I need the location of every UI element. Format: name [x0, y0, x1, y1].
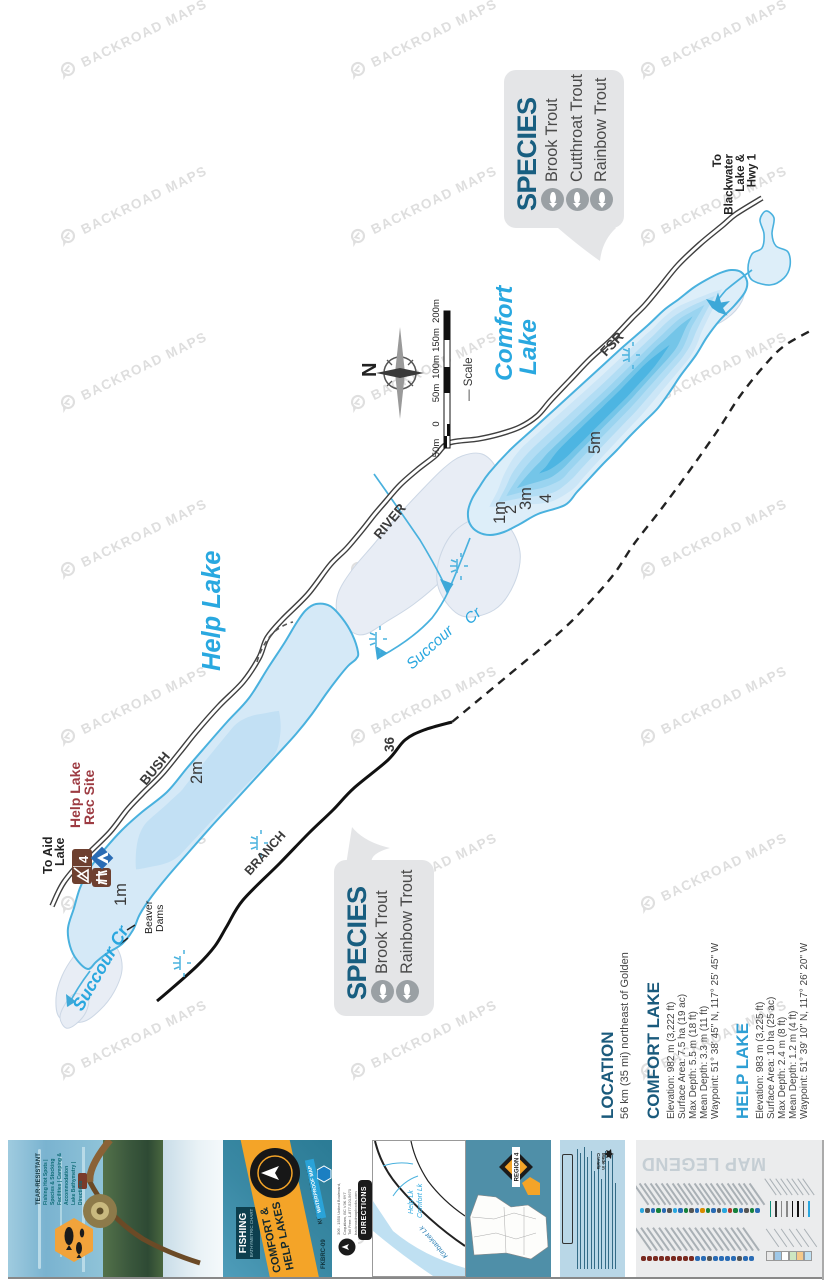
svg-text:4: 4 [537, 494, 555, 503]
svg-text:Succour: Succour [403, 622, 457, 673]
svg-text:Lake: Lake [515, 319, 542, 375]
svg-text:REGION 4: REGION 4 [515, 1152, 521, 1181]
svg-text:Lake: Lake [53, 837, 67, 866]
svg-text:100m: 100m [431, 355, 442, 379]
svg-text:Comfort Lk: Comfort Lk [417, 1183, 424, 1218]
svg-text:Comfort: Comfort [491, 285, 518, 381]
svg-text:200m: 200m [431, 299, 442, 323]
svg-text:1m: 1m [112, 883, 130, 906]
svg-text:Help Lake: Help Lake [198, 551, 226, 671]
svg-text:Rec Site: Rec Site [81, 770, 97, 825]
svg-text:Lake &: Lake & [735, 154, 747, 192]
svg-text:N: N [359, 363, 381, 377]
svg-text:36: 36 [382, 736, 397, 752]
svg-text:— Scale: — Scale [463, 358, 475, 401]
svg-text:To: To [712, 154, 724, 167]
svg-text:2m: 2m [188, 761, 206, 784]
svg-text:50m: 50m [431, 439, 442, 458]
svg-text:BRANCH: BRANCH [242, 828, 289, 878]
svg-text:5m: 5m [586, 431, 604, 454]
svg-text:150m: 150m [431, 328, 442, 352]
svg-text:Blackwater: Blackwater [724, 153, 736, 214]
svg-text:Dams: Dams [154, 905, 166, 932]
svg-text:Help Lk: Help Lk [408, 1190, 415, 1214]
svg-text:0: 0 [431, 421, 442, 426]
svg-text:3m: 3m [517, 487, 535, 510]
svg-text:50m: 50m [431, 384, 442, 403]
svg-text:4: 4 [76, 855, 91, 863]
svg-text:Hwy 1: Hwy 1 [747, 153, 759, 187]
